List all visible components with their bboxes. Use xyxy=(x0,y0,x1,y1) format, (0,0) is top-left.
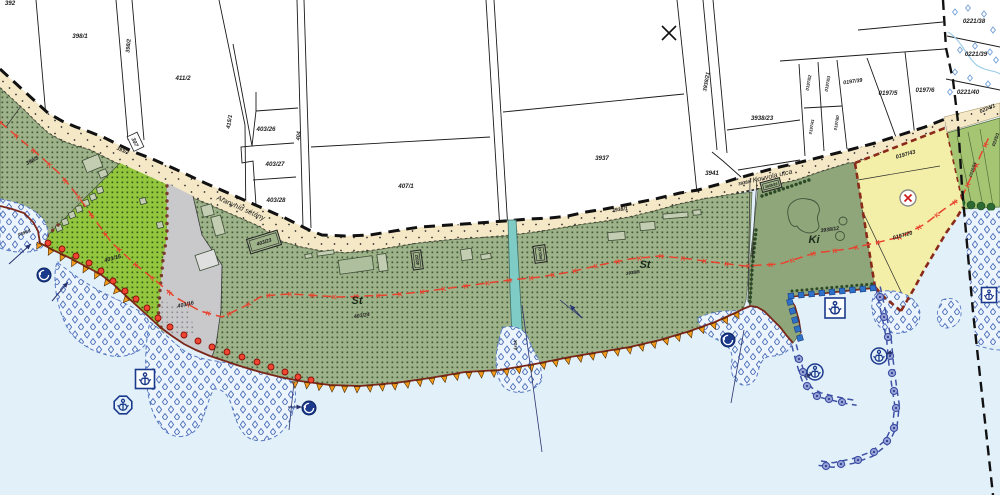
svg-text:411/2: 411/2 xyxy=(174,75,191,82)
svg-text:0221/39: 0221/39 xyxy=(965,51,988,58)
svg-text:K: K xyxy=(768,262,773,269)
svg-text:0221/40: 0221/40 xyxy=(957,89,980,96)
svg-text:398/1: 398/1 xyxy=(72,33,88,40)
svg-text:407/1: 407/1 xyxy=(397,183,414,190)
svg-text:3938/23: 3938/23 xyxy=(751,115,774,122)
svg-text:árok: árok xyxy=(513,340,519,350)
svg-text:3941: 3941 xyxy=(705,170,719,177)
svg-text:K: K xyxy=(266,293,271,300)
svg-text:St: St xyxy=(640,259,652,271)
svg-text:0221/38: 0221/38 xyxy=(963,18,986,25)
svg-text:K: K xyxy=(288,291,293,298)
svg-text:403/26: 403/26 xyxy=(256,126,276,133)
svg-text:K: K xyxy=(746,263,751,270)
svg-text:K: K xyxy=(310,293,315,300)
svg-text:3937: 3937 xyxy=(595,155,609,162)
svg-text:0197/5: 0197/5 xyxy=(879,90,898,97)
svg-text:0197/6: 0197/6 xyxy=(916,87,935,94)
svg-text:St: St xyxy=(352,295,364,307)
svg-text:K: K xyxy=(376,293,381,300)
svg-text:Ki: Ki xyxy=(809,234,821,246)
svg-text:404: 404 xyxy=(296,131,303,141)
svg-text:392: 392 xyxy=(5,0,16,7)
svg-text:403/27: 403/27 xyxy=(265,161,285,168)
svg-text:403/28: 403/28 xyxy=(266,197,286,204)
svg-text:K: K xyxy=(332,294,337,301)
